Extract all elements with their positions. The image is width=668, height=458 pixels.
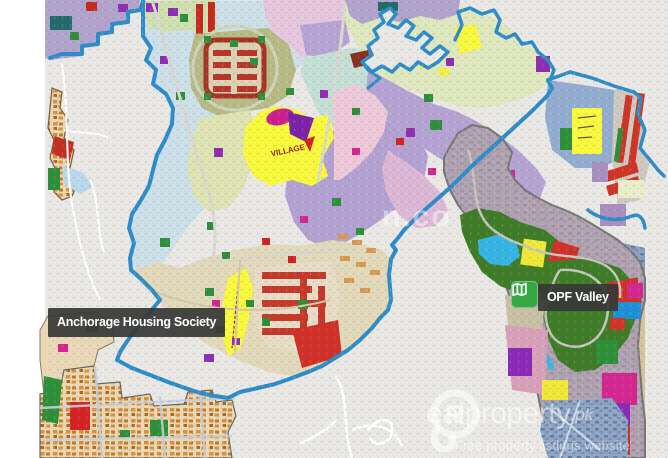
watermark-brand: R ealproperty .pk Free property listings… [424,386,668,442]
folded-map-icon [511,281,528,298]
watermark-center: n.co [382,200,452,234]
map-viewport[interactable]: VILLAGE [0,0,668,458]
opf-map-icon[interactable] [511,281,538,308]
marker-opf-valley[interactable]: OPF Valley [538,284,618,311]
brand-tagline: Free property listings website [455,438,668,453]
marker-anchorage-housing-society[interactable]: Anchorage Housing Society [48,308,225,337]
brand-tld: .pk [571,400,594,430]
brand-initial: R [445,399,465,430]
